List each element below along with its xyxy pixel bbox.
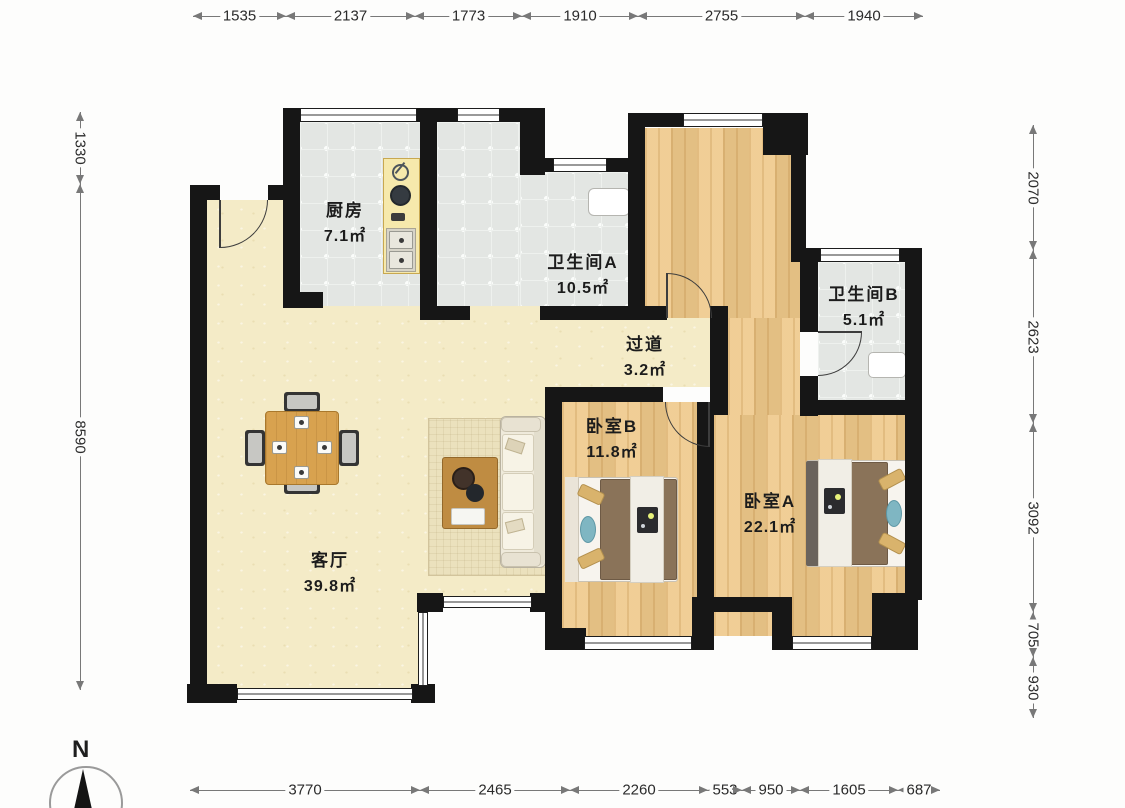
room-name: 厨房: [324, 196, 366, 221]
stove-burner: [390, 185, 411, 206]
wall-segment: [628, 113, 645, 318]
dimension-value: 3092: [1025, 498, 1042, 537]
bedroom-a-corridor-floor: [728, 318, 800, 415]
dimension-bottom-3: 2260: [570, 782, 708, 798]
dimension-top-5: 2755: [638, 8, 805, 24]
wall-segment: [560, 628, 586, 650]
bed-panel: [637, 507, 658, 533]
room-area: 39.8㎡: [304, 572, 356, 596]
wall-segment: [710, 306, 728, 415]
wall-segment: [791, 150, 806, 262]
sink-basin: [389, 251, 413, 269]
dimension-top-4: 1910: [522, 8, 638, 24]
dimension-bottom-7: 687: [898, 782, 940, 798]
bathroom-a-floor: [437, 122, 520, 306]
dimension-bottom-6: 1605: [800, 782, 898, 798]
bed-panel: [824, 488, 845, 514]
sink-basin: [389, 231, 413, 249]
room-name: 客厅: [304, 546, 356, 571]
wall-segment: [800, 400, 922, 415]
room-area: 7.1㎡: [324, 222, 366, 246]
dimension-value: 2465: [475, 782, 514, 799]
dimension-top-6: 1940: [805, 8, 923, 24]
dimension-right-3: 3092: [1025, 423, 1041, 612]
dimension-value: 2137: [331, 8, 370, 25]
wall-segment: [187, 684, 237, 703]
room-name: 卫生间A: [547, 248, 618, 273]
dimension-bottom-1: 3770: [190, 782, 420, 798]
compass-arrow-icon: [71, 769, 95, 808]
dimension-value: 2260: [619, 782, 658, 799]
wall-segment: [190, 185, 220, 200]
wall-segment: [411, 684, 435, 703]
wall-segment: [545, 387, 663, 402]
dimension-left-2: 8590: [72, 184, 88, 690]
room-area: 3.2㎡: [624, 356, 666, 380]
room-name: 卫生间B: [828, 280, 899, 305]
wall-segment: [800, 248, 818, 332]
wall-segment: [872, 593, 918, 650]
dimension-value: 2070: [1025, 168, 1042, 207]
wall-segment: [714, 597, 772, 612]
sofa-armrest: [501, 552, 541, 567]
wall-segment: [692, 597, 714, 650]
dimension-right-4: 705: [1025, 612, 1041, 657]
dimension-value: 8590: [72, 417, 89, 456]
dimension-right-5: 930: [1025, 657, 1041, 718]
dimension-value: 705: [1025, 619, 1042, 650]
place-setting: [272, 441, 287, 454]
room-name: 卧室B: [586, 412, 638, 437]
window: [584, 636, 692, 650]
dimension-bottom-5: 950: [742, 782, 800, 798]
dimension-value: 2623: [1025, 317, 1042, 356]
room-area: 11.8㎡: [586, 438, 638, 462]
place-setting: [294, 466, 309, 479]
compass-north-label: N: [72, 736, 89, 764]
wall-segment: [772, 597, 792, 650]
place-setting: [294, 416, 309, 429]
dimension-bottom-4: 553: [708, 782, 742, 798]
sofa-armrest: [501, 417, 541, 432]
window: [418, 612, 428, 686]
window: [683, 113, 763, 127]
dining-chair: [284, 392, 320, 412]
room-area: 10.5㎡: [547, 274, 618, 298]
wall-segment: [190, 185, 207, 700]
bathroom-b-fixture: [868, 352, 906, 378]
dimension-bottom-2: 2465: [420, 782, 570, 798]
room-label-bedroom-b: 卧室B 11.8㎡: [586, 412, 638, 462]
window: [457, 108, 500, 122]
dimension-value: 930: [1025, 672, 1042, 703]
sofa-backrest: [534, 419, 545, 565]
dimension-value: 1773: [449, 8, 488, 25]
window: [237, 688, 413, 700]
dimension-right-2: 2623: [1025, 250, 1041, 423]
room-name: 过道: [624, 330, 666, 355]
dimension-top-2: 2137: [286, 8, 415, 24]
window: [820, 248, 900, 262]
dimension-value: 3770: [285, 782, 324, 799]
dimension-value: 553: [709, 782, 740, 799]
wall-segment: [530, 593, 562, 612]
wall-segment: [420, 108, 437, 320]
room-name: 卧室A: [744, 487, 796, 512]
dimension-right-1: 2070: [1025, 125, 1041, 250]
wall-segment: [905, 248, 922, 600]
room-label-kitchen: 厨房 7.1㎡: [324, 196, 366, 246]
room-area: 22.1㎡: [744, 513, 796, 537]
dimension-value: 950: [755, 782, 786, 799]
dining-chair: [245, 430, 265, 466]
place-setting: [317, 441, 332, 454]
dimension-value: 1330: [72, 128, 89, 167]
wall-segment: [763, 113, 808, 155]
dining-chair: [339, 430, 359, 466]
room-label-hallway: 过道 3.2㎡: [624, 330, 666, 380]
dimension-value: 1910: [560, 8, 599, 25]
dimension-left-1: 1330: [72, 112, 88, 184]
bed-cushion-teal: [886, 500, 902, 527]
window: [792, 636, 872, 650]
dimension-value: 1940: [844, 8, 883, 25]
wall-segment: [540, 306, 667, 320]
window: [300, 108, 417, 122]
room-area: 5.1㎡: [828, 306, 899, 330]
dimension-top-3: 1773: [415, 8, 522, 24]
room-label-bedroom-a: 卧室A 22.1㎡: [744, 487, 796, 537]
wall-segment: [283, 108, 300, 308]
window: [443, 596, 532, 608]
dimension-value: 2755: [702, 8, 741, 25]
room-label-living-room: 客厅 39.8㎡: [304, 546, 356, 596]
bathroom-a-fixture: [588, 188, 630, 216]
room-label-bathroom-a: 卫生间A 10.5㎡: [547, 248, 618, 298]
coffee-table-bowl: [466, 484, 484, 502]
dimension-top-1: 1535: [193, 8, 286, 24]
dimension-value: 1605: [829, 782, 868, 799]
bed-cushion-teal: [580, 516, 596, 543]
room-label-bathroom-b: 卫生间B 5.1㎡: [828, 280, 899, 330]
wall-segment: [800, 376, 818, 416]
wall-segment: [420, 306, 470, 320]
wall-segment: [628, 113, 683, 127]
kitchen-item: [391, 213, 405, 221]
wall-segment: [417, 593, 443, 612]
dimension-value: 687: [903, 782, 934, 799]
window: [553, 158, 607, 172]
wall-segment: [283, 292, 323, 308]
wall-segment: [520, 108, 545, 175]
coffee-table-tray: [451, 508, 485, 525]
dimension-value: 1535: [220, 8, 259, 25]
floor-plan-canvas: 1535 2137 1773 1910 2755 1940 3770 2465 …: [0, 0, 1125, 808]
sofa-cushion: [502, 473, 534, 511]
